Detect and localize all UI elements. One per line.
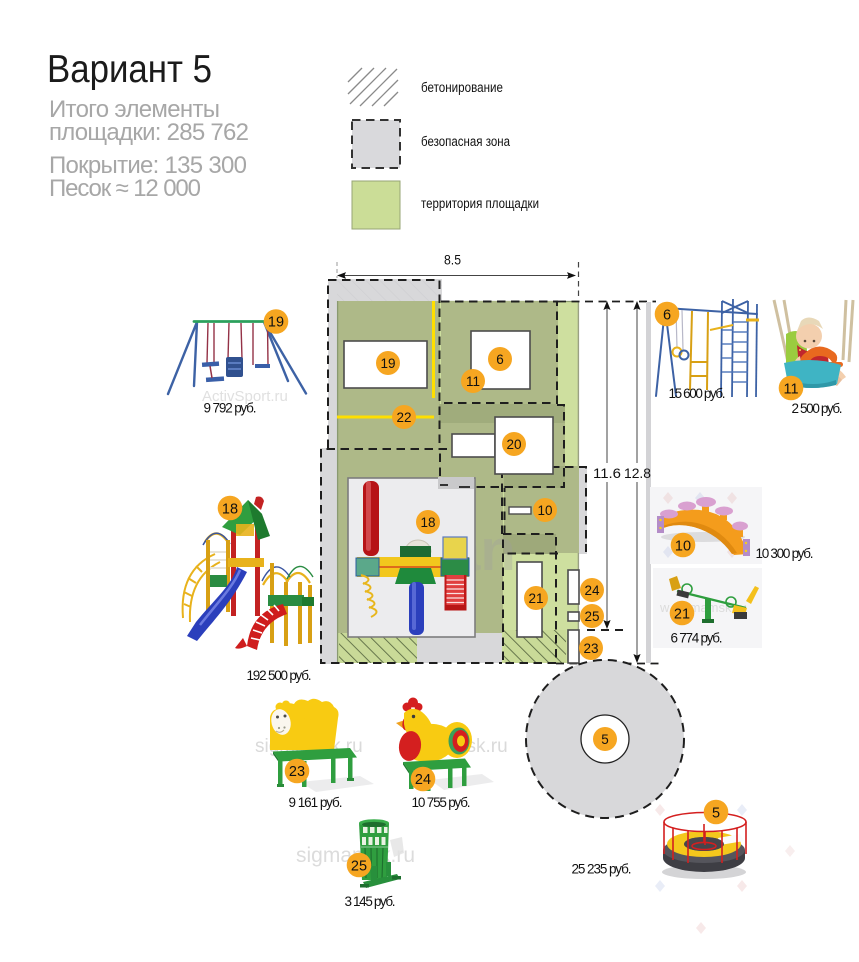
svg-text:11: 11	[466, 374, 480, 389]
svg-text:10 300 руб.: 10 300 руб.	[756, 546, 814, 561]
svg-text:10: 10	[675, 539, 691, 555]
svg-text:безопасная зона: безопасная зона	[421, 134, 510, 149]
svg-text:6: 6	[663, 308, 671, 324]
svg-text:18: 18	[222, 502, 238, 518]
svg-text:21: 21	[528, 591, 543, 606]
svg-text:6: 6	[496, 352, 504, 367]
svg-text:6 774 руб.: 6 774 руб.	[671, 631, 723, 646]
svg-text:23: 23	[289, 764, 305, 780]
svg-text:19: 19	[268, 315, 284, 331]
svg-text:12.8: 12.8	[624, 465, 651, 481]
svg-text:5: 5	[712, 806, 720, 822]
svg-text:15 600 руб.: 15 600 руб.	[669, 386, 726, 401]
svg-text:территория площадки: территория площадки	[421, 196, 539, 211]
svg-text:22: 22	[396, 410, 411, 425]
svg-text:23: 23	[583, 641, 598, 656]
svg-text:Вариант 5: Вариант 5	[47, 48, 212, 91]
svg-text:25: 25	[351, 859, 367, 875]
svg-text:20: 20	[506, 437, 521, 452]
svg-text:2 500 руб.: 2 500 руб.	[792, 401, 843, 416]
svg-text:21: 21	[674, 607, 690, 623]
svg-text:5: 5	[601, 732, 609, 747]
svg-text:10 755 руб.: 10 755 руб.	[412, 795, 471, 810]
svg-text:192 500 руб.: 192 500 руб.	[247, 668, 312, 683]
svg-text:18: 18	[420, 515, 435, 530]
svg-text:11.6: 11.6	[593, 465, 621, 481]
svg-text:бетонирование: бетонирование	[421, 80, 503, 95]
svg-text:10: 10	[537, 503, 552, 518]
svg-text:Песок ≈ 12 000: Песок ≈ 12 000	[49, 175, 201, 202]
svg-text:19: 19	[380, 356, 395, 371]
svg-text:25: 25	[584, 609, 599, 624]
svg-text:24: 24	[415, 772, 431, 788]
svg-text:площадки: 285 762: площадки: 285 762	[49, 119, 249, 146]
svg-text:25 235 руб.: 25 235 руб.	[572, 862, 632, 877]
svg-text:9 792 руб.: 9 792 руб.	[204, 401, 257, 416]
svg-text:3 145 руб.: 3 145 руб.	[345, 894, 396, 909]
svg-text:9 161 руб.: 9 161 руб.	[289, 795, 343, 810]
svg-text:24: 24	[584, 583, 600, 598]
svg-text:8.5: 8.5	[444, 252, 461, 268]
svg-text:11: 11	[783, 382, 798, 398]
